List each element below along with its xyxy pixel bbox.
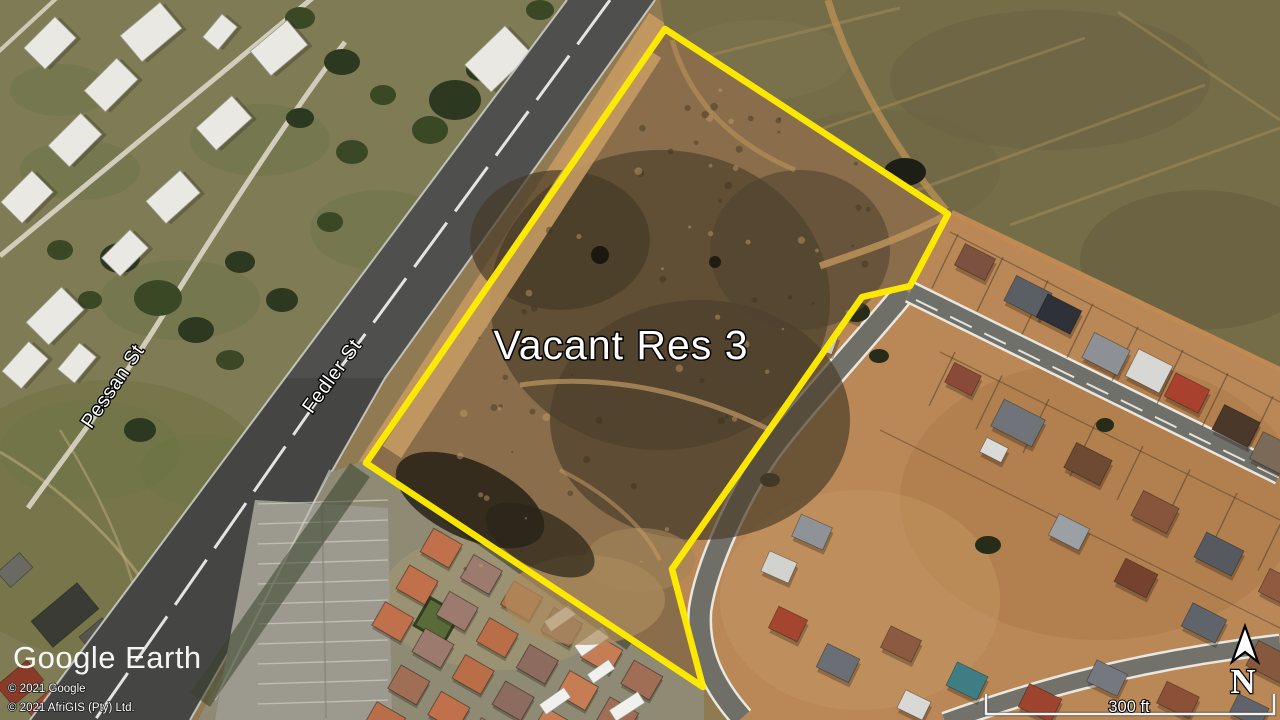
map-viewport[interactable]: Vacant Res 3 Fedler St Pessan St Google … [0,0,1280,720]
copyright-afrigis: © 2021 AfriGIS (Pty) Ltd. [8,702,135,714]
parcel-label: Vacant Res 3 [493,322,748,368]
copyright-google: © 2021 Google [8,683,86,695]
north-label: N [1230,662,1255,701]
scale-label: 300 ft [1108,698,1150,716]
satellite-canvas: Vacant Res 3 Fedler St Pessan St Google … [0,0,1280,720]
google-earth-logo: Google Earth [13,640,202,675]
